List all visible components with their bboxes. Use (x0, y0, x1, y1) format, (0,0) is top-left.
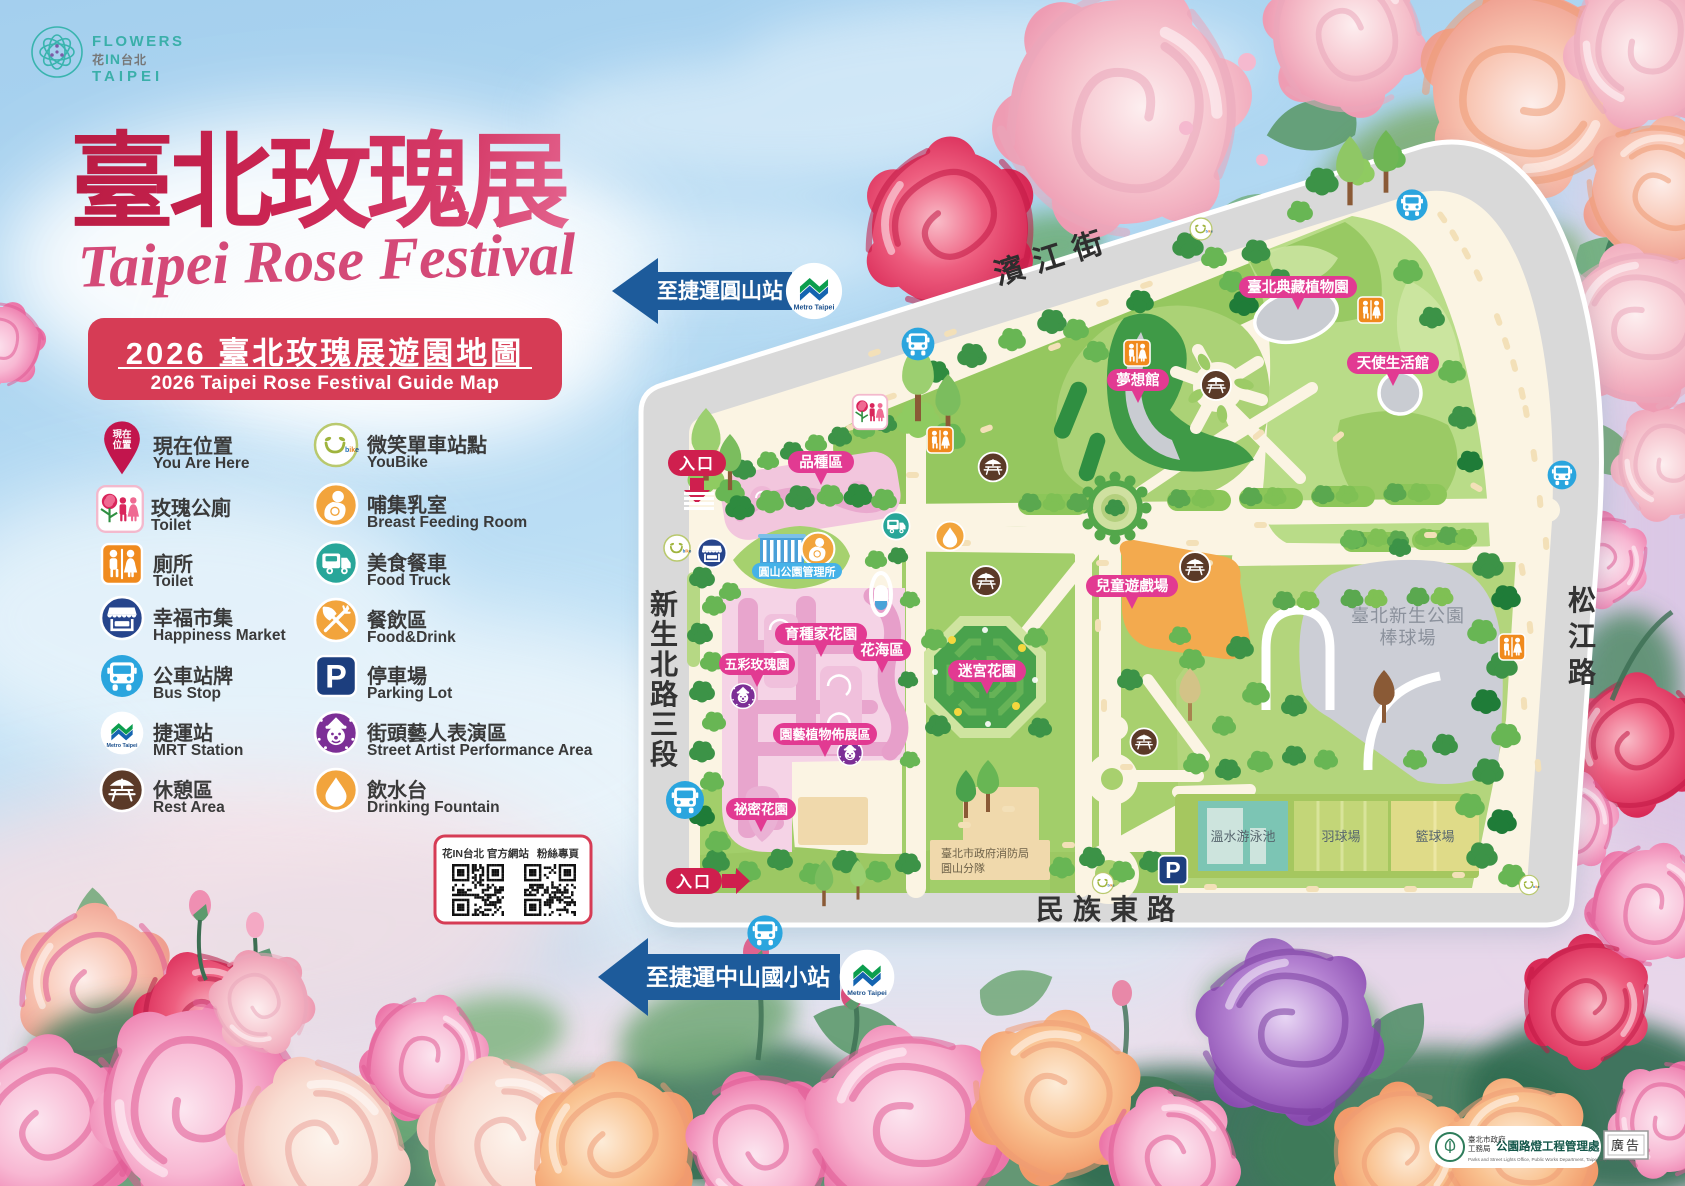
svg-text:花IN台北 官方網站: 花IN台北 官方網站 (442, 847, 529, 860)
svg-text:粉絲專頁: 粉絲專頁 (537, 847, 579, 860)
